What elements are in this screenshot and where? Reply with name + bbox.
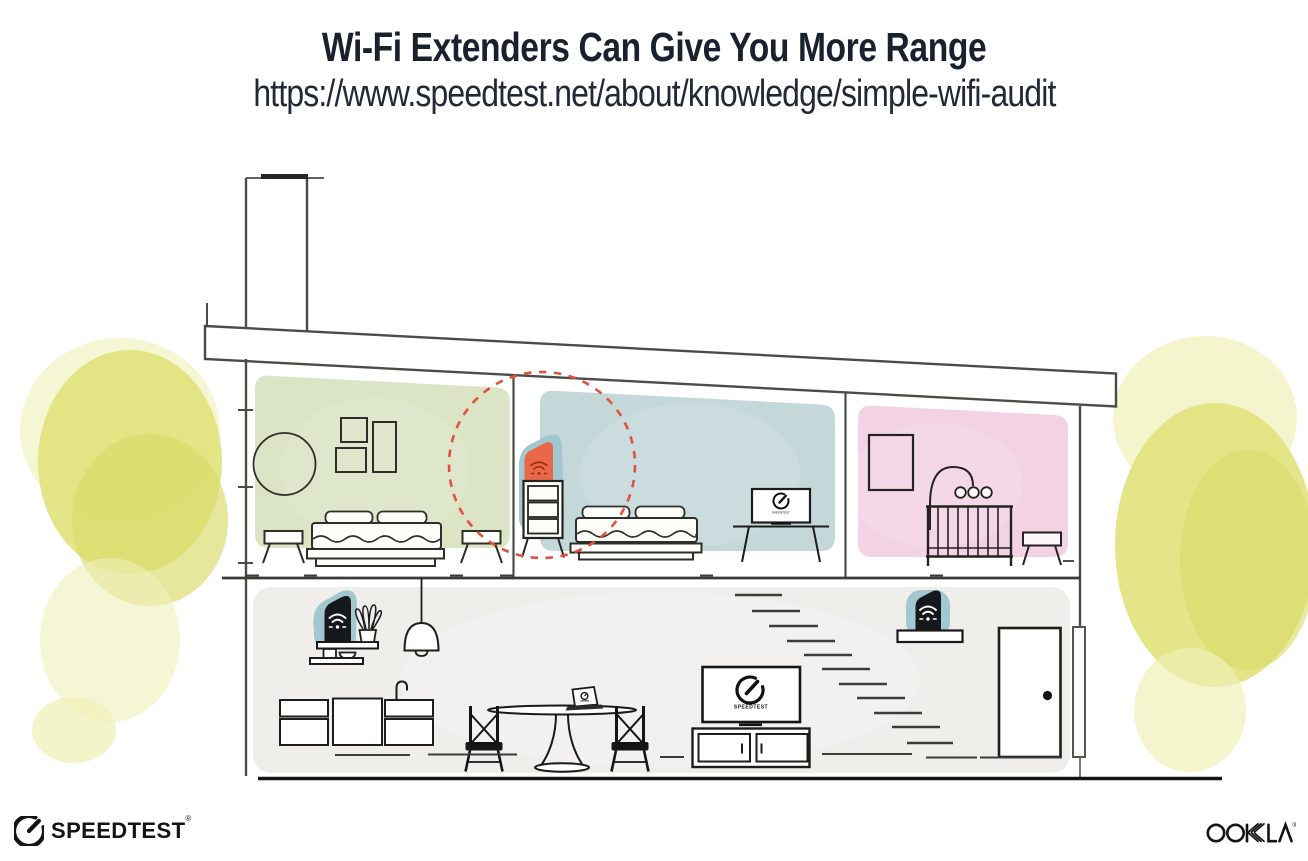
registered-mark: ®	[185, 814, 191, 823]
upstairs-tv-label: SPEEDTEST	[772, 511, 790, 515]
door-knob	[1043, 691, 1052, 700]
speedtest-wordmark: SPEEDTEST	[51, 818, 185, 843]
ookla-wordmark: ®	[1206, 818, 1296, 846]
door	[999, 628, 1061, 757]
ookla-logo: ®	[1206, 818, 1296, 851]
wall-trim	[1073, 627, 1085, 757]
foliage-right	[1113, 336, 1308, 772]
tv-console	[693, 729, 810, 768]
foliage-left	[20, 338, 228, 763]
bed	[571, 507, 702, 560]
tv-screen-label: SPEEDTEST	[734, 705, 768, 711]
page-root: { "header": { "title": "Wi-Fi Extenders …	[0, 0, 1308, 861]
house-illustration: SPEEDTEST	[0, 0, 1308, 861]
chimney	[246, 177, 324, 332]
speedtest-logo: SPEEDTEST®	[14, 816, 191, 846]
living-room-tv: SPEEDTEST	[703, 667, 801, 726]
speedtest-gauge-icon	[14, 816, 44, 846]
registered-mark: ®	[1293, 821, 1297, 829]
